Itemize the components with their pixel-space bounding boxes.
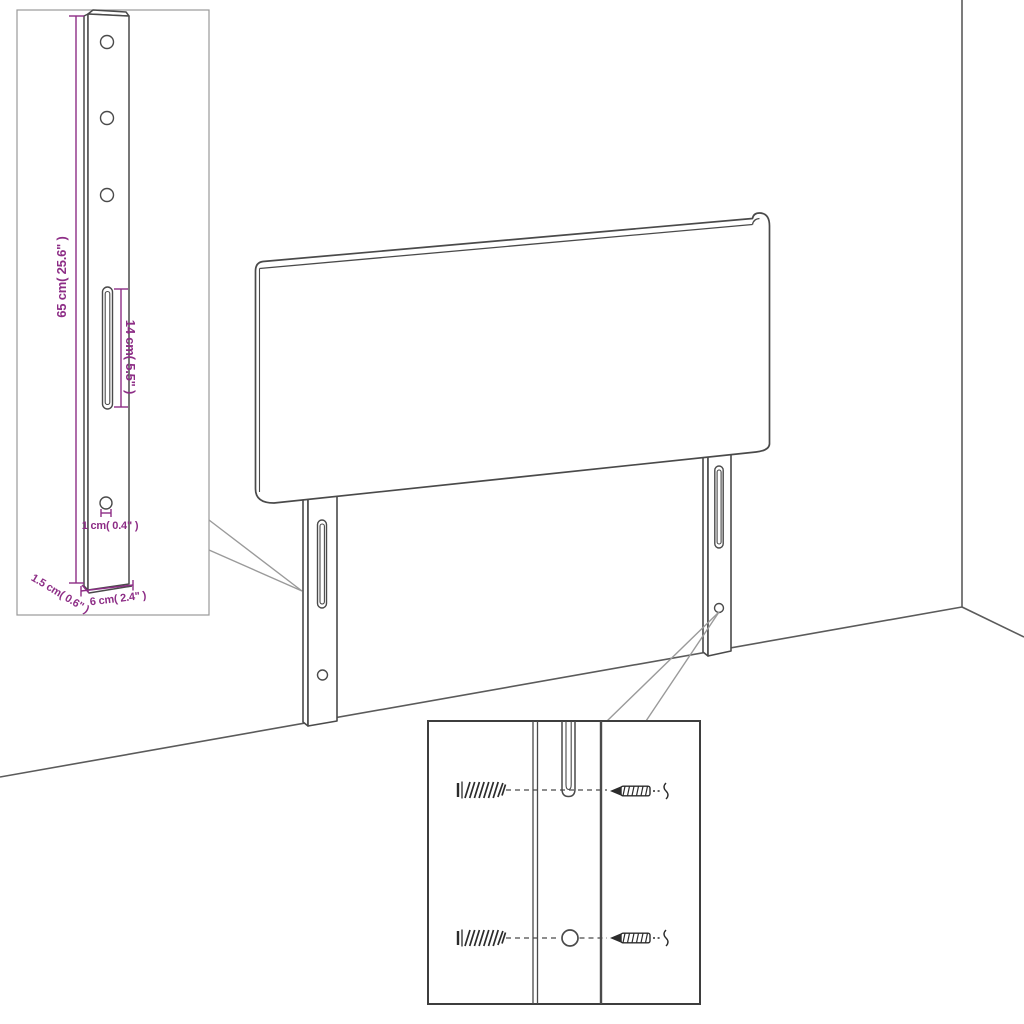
headboard-right-leg: [703, 453, 731, 656]
dim-label-hole-diameter: 1 cm( 0.4" ): [70, 519, 150, 533]
callout-lines-left: [209, 520, 302, 591]
dim-label-slot-length: 14 cm( 5.5" ): [123, 313, 137, 401]
diagram-linework: [0, 0, 1024, 1024]
mounting-detail-box: [428, 721, 700, 1004]
headboard-left-leg: [303, 494, 337, 726]
dim-label-height: 65 cm( 25.6" ): [55, 227, 69, 327]
headboard-panel: [256, 213, 770, 503]
assembly-diagram: 65 cm( 25.6" ) 14 cm( 5.5" ) 1 cm( 0.4" …: [0, 0, 1024, 1024]
leg-detail-drawing: [84, 10, 132, 593]
